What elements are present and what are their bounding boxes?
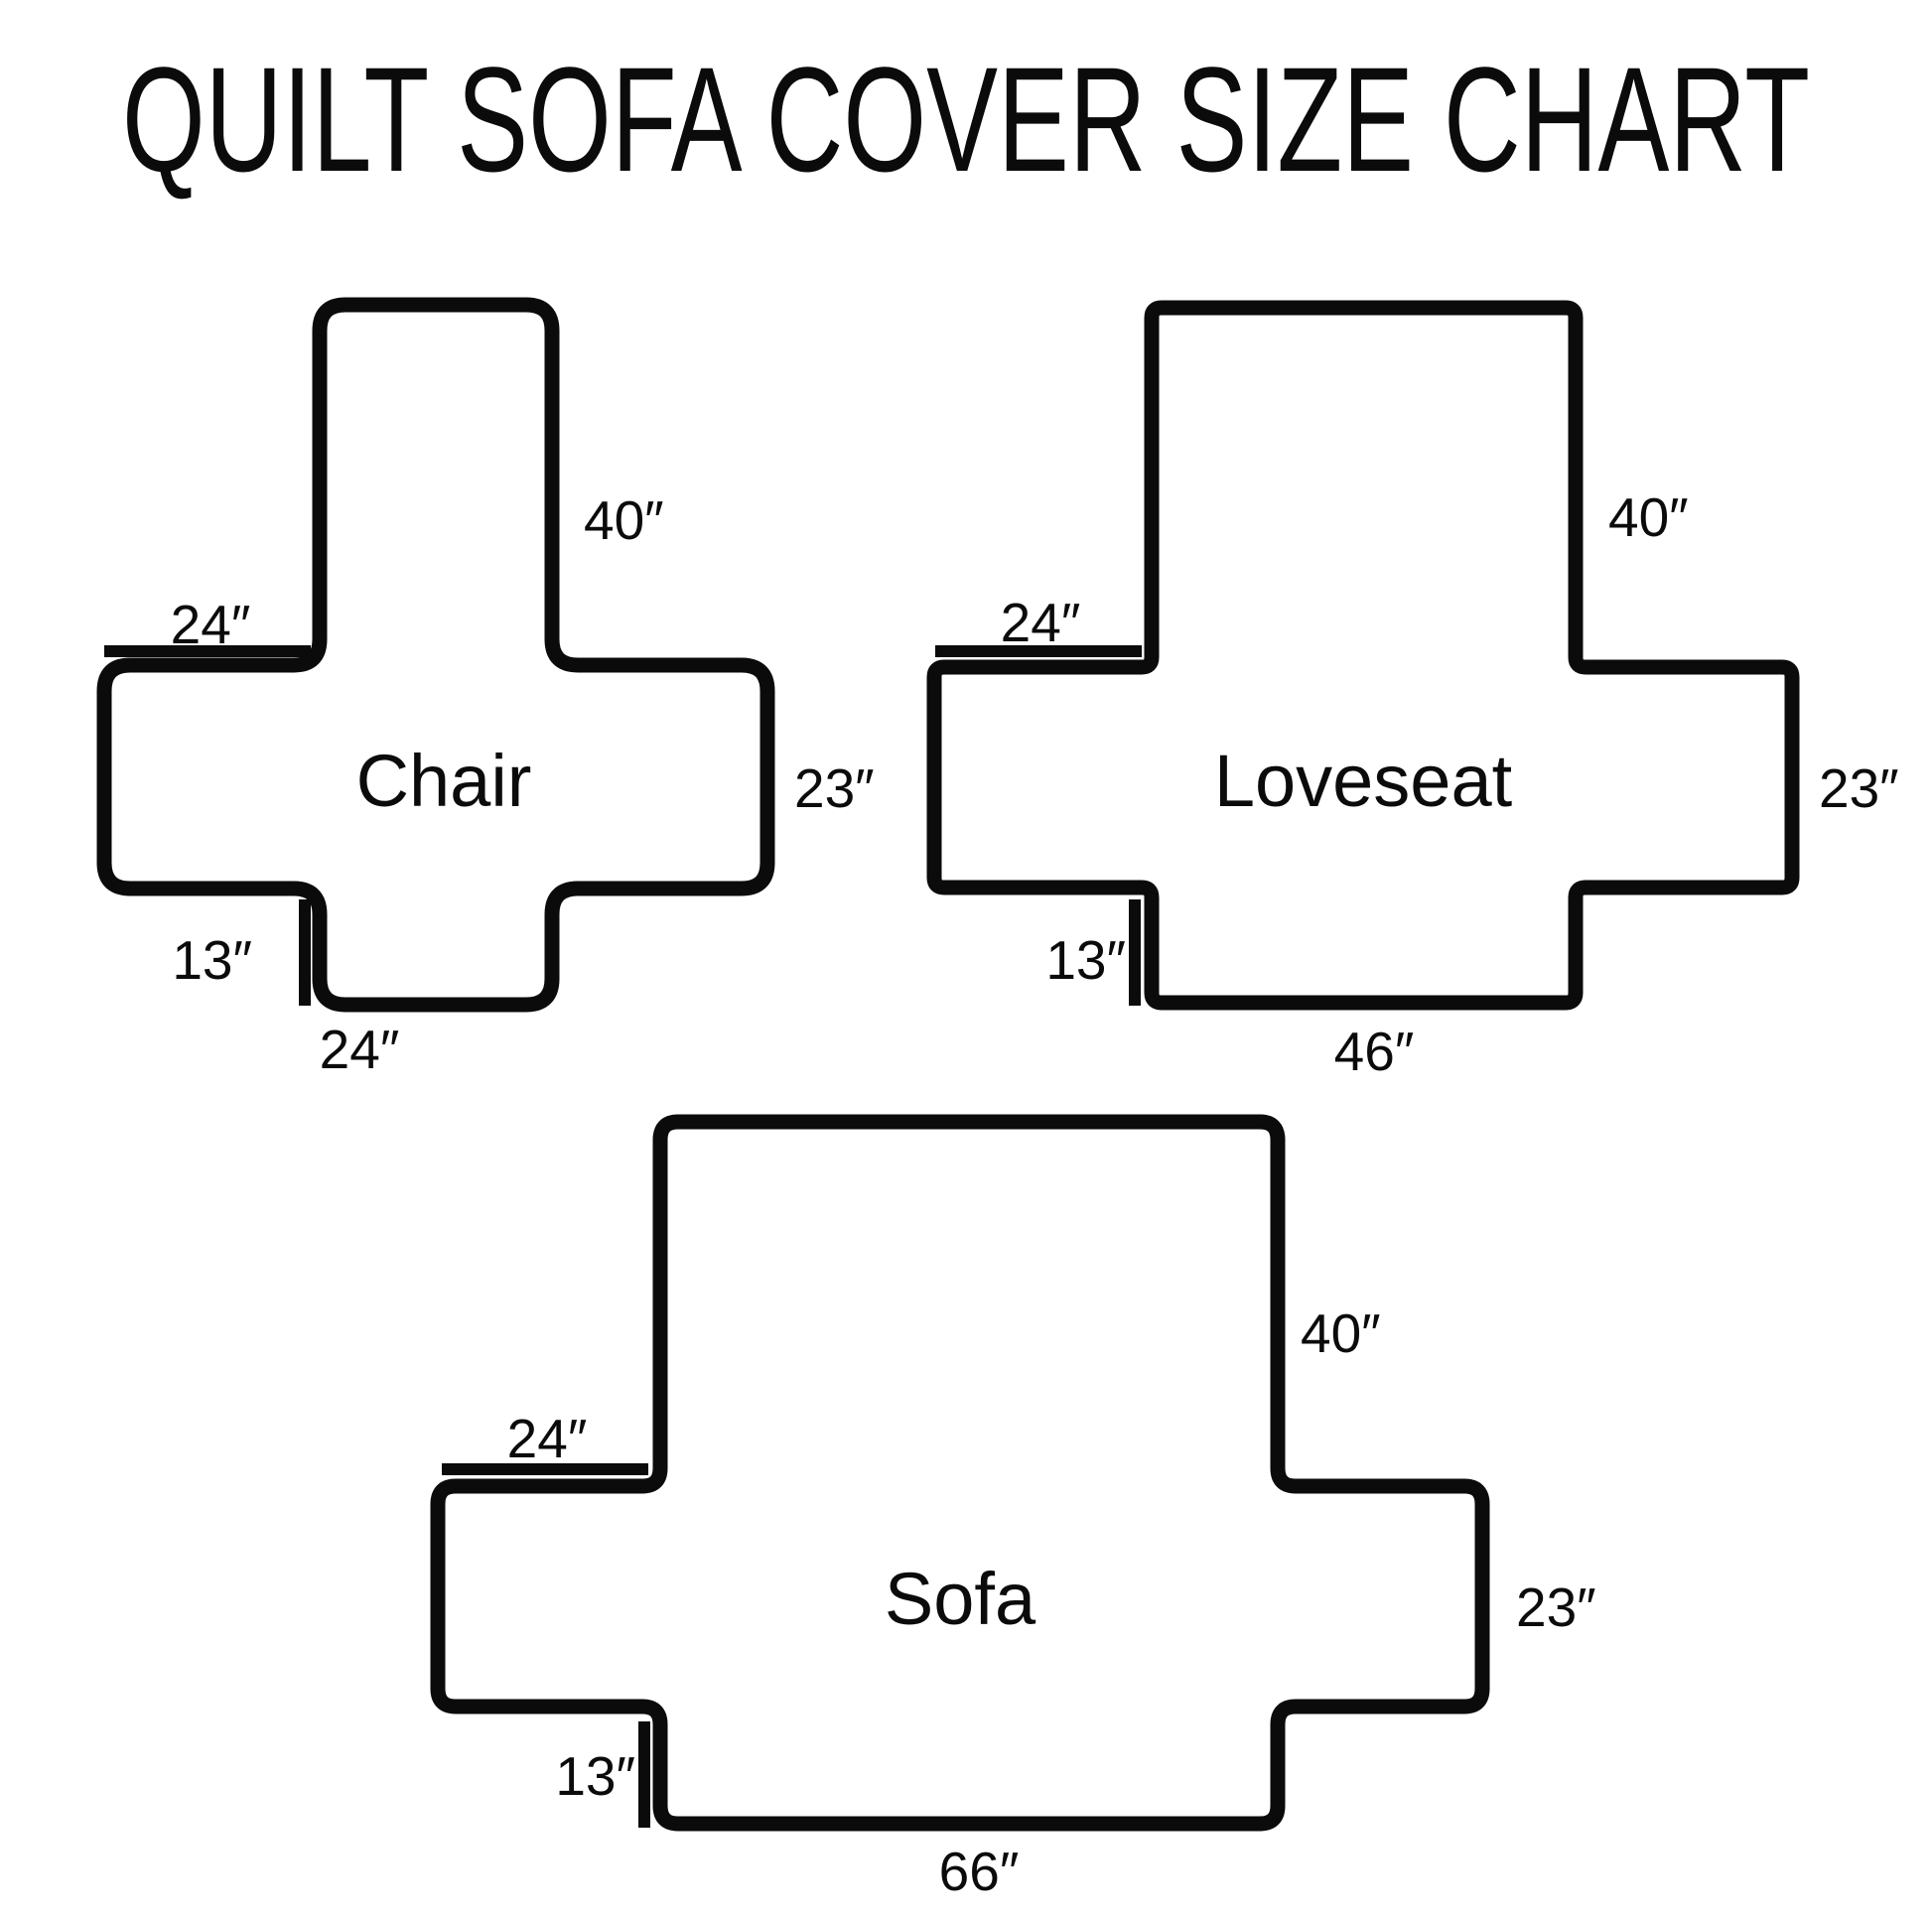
sofa-back-height-dimension-text: 40″ — [1301, 1302, 1381, 1364]
pattern-shapes-layer: Chair40″24″23″13″24″Loveseat40″24″23″13″… — [104, 305, 1899, 1902]
loveseat-back-height-dimension-text: 40″ — [1608, 486, 1689, 548]
loveseat-front-width-dimension-text: 46″ — [1334, 1021, 1415, 1082]
loveseat-skirt-height-dimension-text: 13″ — [1045, 929, 1126, 991]
loveseat-arm-top-width-dimension-text: 24″ — [1001, 592, 1081, 653]
size-chart-canvas: QUILT SOFA COVER SIZE CHART Chair40″24″2… — [0, 0, 1932, 1918]
sofa-label: Sofa — [885, 1558, 1036, 1640]
chair-side-height-dimension-text: 23″ — [794, 757, 875, 819]
chair-back-height-dimension-text: 40″ — [584, 489, 664, 551]
sofa-side-height-dimension-text: 23″ — [1516, 1576, 1596, 1638]
loveseat-side-height-dimension-text: 23″ — [1819, 757, 1899, 819]
chair-label: Chair — [356, 740, 532, 822]
sofa-front-width-dimension-text: 66″ — [939, 1841, 1020, 1902]
quilt-sofa-cover-size-chart-page: QUILT SOFA COVER SIZE CHART Chair40″24″2… — [0, 0, 1932, 1918]
chair-front-width-dimension-text: 24″ — [320, 1019, 400, 1080]
page-title: QUILT SOFA COVER SIZE CHART — [122, 36, 1810, 203]
chair-skirt-height-dimension-text: 13″ — [172, 929, 252, 991]
sofa-skirt-height-dimension-text: 13″ — [555, 1745, 635, 1807]
sofa-arm-top-width-dimension-text: 24″ — [507, 1408, 588, 1469]
chair-arm-top-width-dimension-text: 24″ — [171, 594, 251, 655]
loveseat-label: Loveseat — [1214, 740, 1513, 822]
